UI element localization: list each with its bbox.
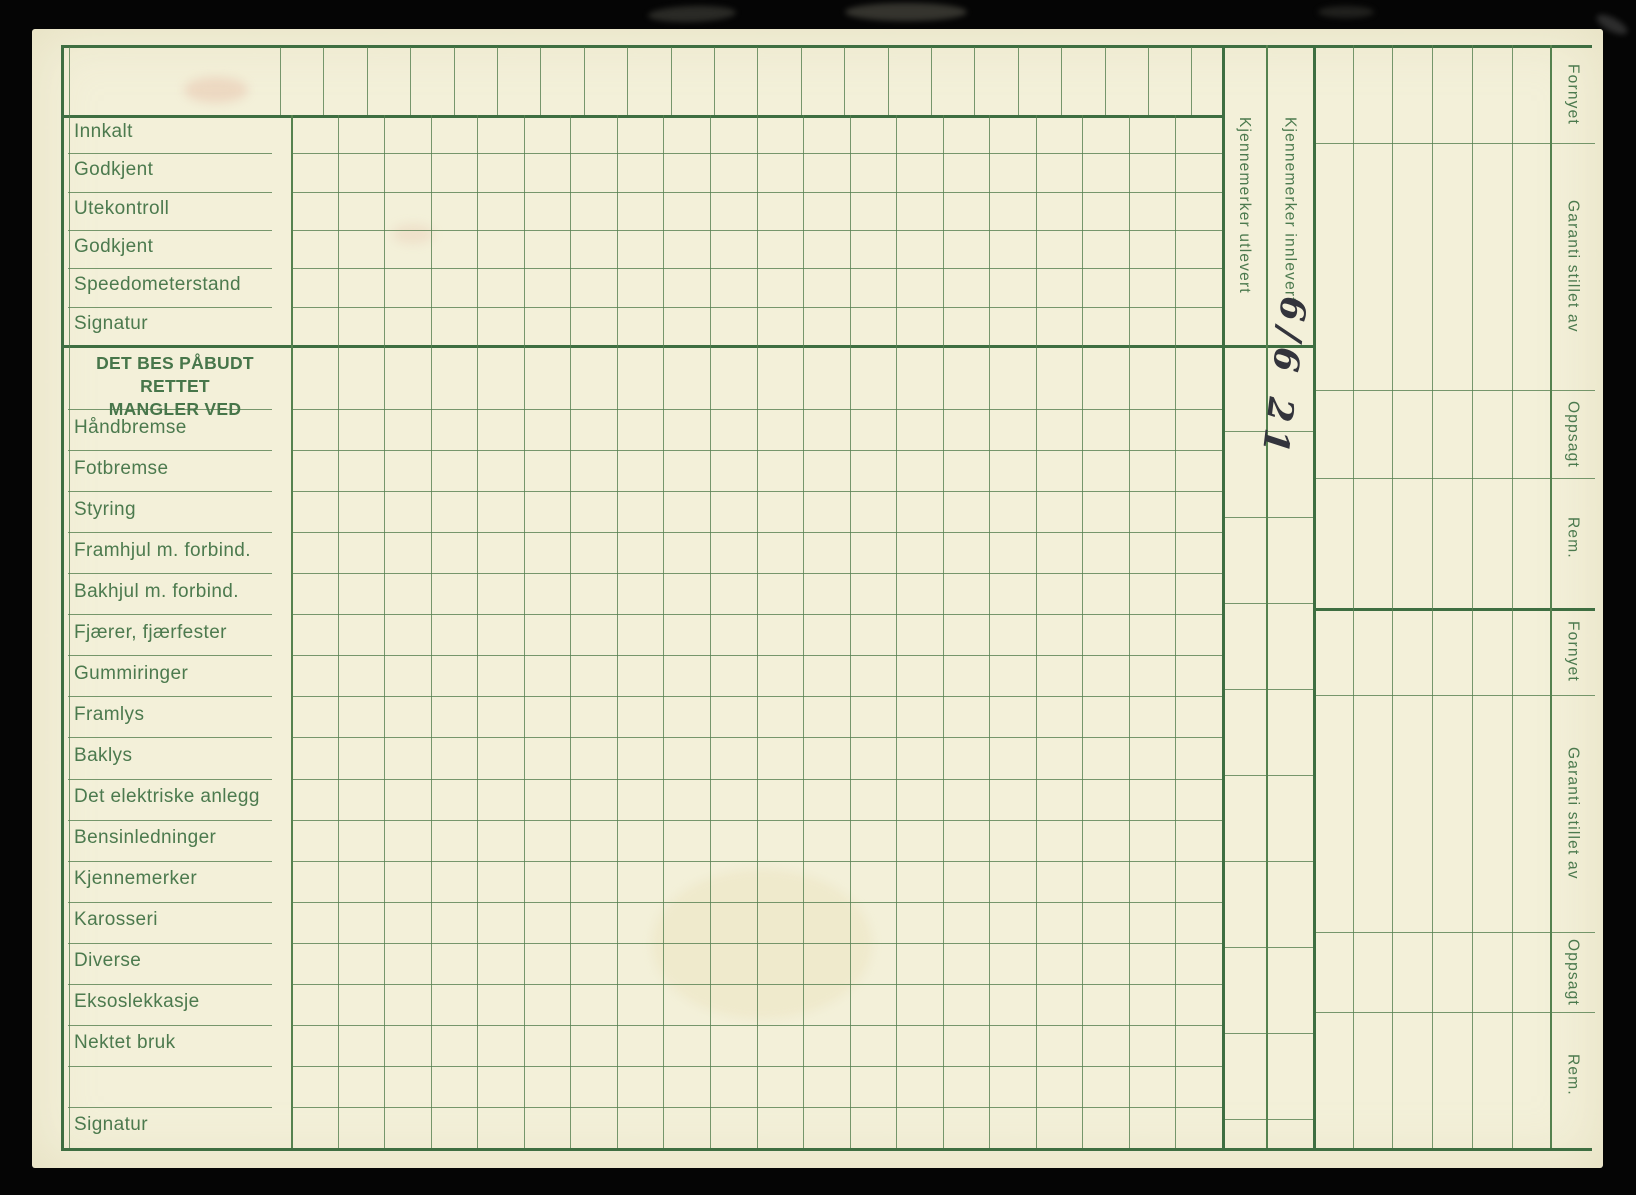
row-label-styring: Styring [74, 499, 136, 521]
row-label-bakhjul: Bakhjul m. forbind. [74, 581, 239, 603]
margin-label-rem-bottom: Rem. [1550, 1012, 1595, 1138]
card-paper [32, 29, 1603, 1168]
section-header: DET BES PÅBUDT RETTET MANGLER VED [64, 352, 286, 421]
margin-label-fornyet-bottom: Fornyet [1550, 608, 1595, 695]
handwritten-date: 6/6 21 [1247, 296, 1319, 486]
margin-label-garanti-bottom: Garanti stillet av [1550, 695, 1595, 932]
row-label-fjaerer: Fjærer, fjærfester [74, 622, 227, 644]
row-label-eksoslekkasje: Eksoslekkasje [74, 991, 200, 1013]
row-label-signatur-bottom: Signatur [74, 1114, 148, 1136]
handwritten-date-text: 6/6 21 [1253, 294, 1314, 462]
margin-label-text: Garanti stillet av [1564, 200, 1582, 333]
margin-label-text: Oppsagt [1564, 939, 1582, 1006]
margin-label-text: Garanti stillet av [1564, 747, 1582, 880]
margin-label-text: Oppsagt [1564, 401, 1582, 468]
scan-smudge [845, 3, 967, 21]
row-label-baklys: Baklys [74, 745, 132, 767]
section-header-line1: DET BES PÅBUDT RETTET [64, 352, 286, 398]
row-label-fotbremse: Fotbremse [74, 458, 168, 480]
margin-label-garanti-top: Garanti stillet av [1550, 143, 1595, 390]
row-label-framlys: Framlys [74, 704, 144, 726]
margin-label-rem-top: Rem. [1550, 478, 1595, 598]
row-label-diverse: Diverse [74, 950, 141, 972]
row-label-speedometerstand: Speedometerstand [74, 274, 241, 296]
margin-label-text: Fornyet [1564, 621, 1582, 682]
row-label-innkalt: Innkalt [74, 121, 133, 143]
margin-label-oppsagt-top: Oppsagt [1550, 390, 1595, 478]
row-label-framhjul: Framhjul m. forbind. [74, 540, 251, 562]
paper-stain [392, 224, 434, 244]
col-header-plates-returned-label: Kjennemerker innlevert [1281, 117, 1299, 303]
row-label-signatur-top: Signatur [74, 313, 148, 335]
margin-label-text: Rem. [1564, 1054, 1582, 1096]
row-label-karosseri: Karosseri [74, 909, 158, 931]
row-label-elektriske: Det elektriske anlegg [74, 786, 260, 808]
col-header-plates-issued-label: Kjennemerker utlevert [1235, 117, 1253, 294]
scan-smudge [648, 4, 737, 23]
row-label-utekontroll: Utekontroll [74, 198, 169, 220]
margin-label-text: Fornyet [1564, 64, 1582, 125]
row-label-godkjent-1: Godkjent [74, 159, 153, 181]
paper-stain [652, 869, 872, 1019]
margin-label-oppsagt-bottom: Oppsagt [1550, 932, 1595, 1012]
row-label-handbremse: Håndbremse [74, 417, 187, 439]
row-label-gummiringer: Gummiringer [74, 663, 188, 685]
row-label-bensinledninger: Bensinledninger [74, 827, 216, 849]
row-label-godkjent-2: Godkjent [74, 236, 153, 258]
margin-label-text: Rem. [1564, 517, 1582, 559]
scanned-inspection-card: Innkalt Godkjent Utekontroll Godkjent Sp… [0, 0, 1636, 1195]
row-label-kjennemerker: Kjennemerker [74, 868, 197, 890]
margin-label-fornyet-top: Fornyet [1550, 45, 1595, 143]
paper-stain [184, 77, 248, 103]
scan-smudge [1318, 6, 1374, 18]
row-label-nektet-bruk: Nektet bruk [74, 1032, 176, 1054]
